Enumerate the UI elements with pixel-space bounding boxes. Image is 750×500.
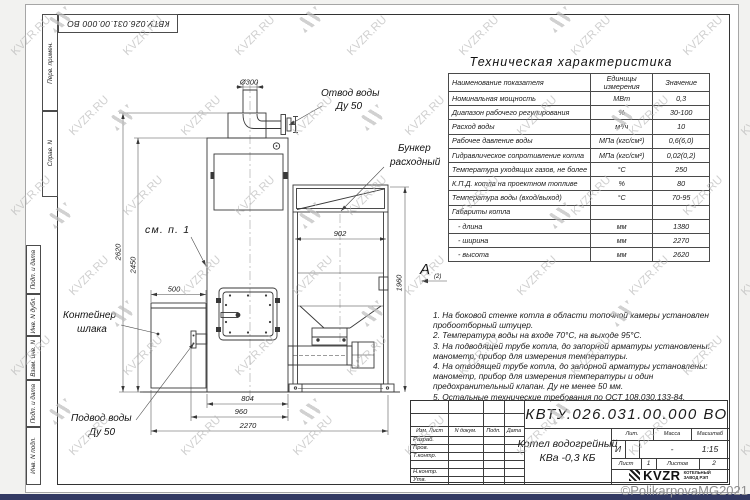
label-slag-2: шлака bbox=[77, 324, 107, 335]
copyright-watermark: ©PolikarpovaMG2021 bbox=[621, 483, 748, 498]
spec-row: Температура воды (вход/выход)°С70-95 bbox=[449, 191, 710, 205]
tb-role-utv: Утв. bbox=[413, 477, 426, 483]
spec-table-title: Техническая характеристика bbox=[448, 55, 694, 69]
label-water-inlet-2: Ду 50 bbox=[88, 427, 115, 438]
spec-row: Рабочее давление водыМПа (кгс/см²)0,6(6,… bbox=[449, 134, 710, 148]
callout-labels: Отвод воды Ду 50 Бункер расходный см. п.… bbox=[63, 88, 441, 438]
tb-sheets-value: 2 bbox=[699, 458, 729, 469]
tb-mass-header: Масса bbox=[653, 428, 691, 440]
centerlines bbox=[250, 84, 340, 398]
spec-col-name: Наименование показателя bbox=[449, 74, 591, 92]
note-3: 3. На подводящей трубе котла, до запорно… bbox=[433, 342, 716, 362]
label-see-note: см. п. 1 bbox=[145, 224, 190, 236]
label-water-inlet-1: Подвод воды bbox=[71, 413, 132, 424]
door-handle bbox=[221, 313, 238, 318]
label-water-outlet-2: Ду 50 bbox=[335, 101, 362, 112]
upper-panel bbox=[214, 154, 283, 210]
spec-row: Гидравлическое сопротивление котлаМПа (к… bbox=[449, 148, 710, 162]
screw-feeder bbox=[288, 328, 374, 368]
note-2: 2. Температура воды на входе 70°С, на вы… bbox=[433, 331, 716, 341]
tb-role-prov: Пров. bbox=[413, 445, 428, 451]
dimension-arrows bbox=[121, 85, 428, 432]
view-marker-letter: А bbox=[419, 261, 430, 278]
kvzr-logo-text: KVZR bbox=[643, 468, 680, 483]
dim-bunker-height: 1960 bbox=[395, 274, 404, 292]
label-bunker-2: расходный bbox=[389, 157, 441, 168]
tb-header-izm-list: Изм. Лист bbox=[411, 426, 448, 436]
tb-designation: КВТУ.026.031.00.000 ВО bbox=[524, 401, 729, 428]
dim-chimney: Ø300 bbox=[239, 78, 259, 87]
tb-lit-header: Лит. bbox=[611, 428, 653, 440]
tb-header-podp: Подп. bbox=[483, 426, 504, 436]
tb-scale-header: Масштаб bbox=[691, 428, 729, 440]
spec-row: Габариты котла bbox=[449, 205, 710, 219]
smoke-box bbox=[228, 113, 266, 138]
boiler-unit bbox=[140, 90, 400, 392]
elbow-inner bbox=[257, 114, 262, 121]
tb-sheet-label: Лист bbox=[611, 458, 641, 469]
note-4: 4. На отводящей трубе котла, до запорной… bbox=[433, 362, 716, 392]
kvzr-logo: KVZR КОТЕЛЬНЫЙ ЗАВОД РЭП bbox=[611, 469, 729, 482]
dim-total-height: 2620 bbox=[114, 243, 123, 262]
dim-body-height: 2450 bbox=[129, 256, 138, 275]
tb-lit-value: И bbox=[611, 440, 625, 458]
dim-base-width: 804 bbox=[241, 394, 254, 403]
title-block: Изм. Лист N докум. Подп. Дата Разраб. Пр… bbox=[410, 400, 728, 483]
spec-row: Номинальная мощностьМВт0,3 bbox=[449, 92, 710, 106]
tb-header-data: Дата bbox=[504, 426, 524, 436]
spec-row: К.П.Д. котла на проектном топливе%80 bbox=[449, 177, 710, 191]
spec-row: Температура уходящих газов, не более°С25… bbox=[449, 162, 710, 176]
tb-mass-value: - bbox=[653, 440, 691, 458]
tb-header-n-dokum: N докум. bbox=[448, 426, 483, 436]
tb-role-nkontr: Н.контр. bbox=[413, 469, 438, 475]
spec-table: Наименование показателя Единицы измерени… bbox=[448, 73, 710, 262]
elbow-outer bbox=[243, 114, 262, 129]
label-bunker-1: Бункер bbox=[398, 143, 431, 154]
dim-total-width: 2270 bbox=[239, 421, 258, 430]
spec-header-row: Наименование показателя Единицы измерени… bbox=[449, 74, 710, 92]
spec-row: Диапазон рабочего регулирования%30-100 bbox=[449, 106, 710, 120]
spec-col-units: Единицы измерения bbox=[591, 74, 653, 92]
kvzr-logo-icon bbox=[629, 470, 640, 481]
dim-slag-width: 500 bbox=[168, 285, 181, 294]
drawing-sheet: { "frame": { "designation_top": "КВТУ.02… bbox=[0, 0, 750, 500]
dimension-lines bbox=[119, 82, 409, 435]
tb-role-razrab: Разраб. bbox=[413, 437, 434, 443]
label-water-outlet-1: Отвод воды bbox=[321, 88, 380, 99]
label-slag-1: Контейнер bbox=[63, 310, 116, 321]
slag-container bbox=[151, 303, 206, 388]
note-1: 1. На боковой стенке котла в области топ… bbox=[433, 311, 716, 331]
kvzr-logo-subtitle: КОТЕЛЬНЫЙ ЗАВОД РЭП bbox=[684, 471, 711, 481]
tb-role-tkontr: Т.контр. bbox=[413, 453, 436, 459]
tb-product-name-1: Котел водогрейный bbox=[524, 437, 611, 451]
spec-col-value: Значение bbox=[653, 74, 710, 92]
dim-mid-width: 960 bbox=[235, 407, 248, 416]
tb-scale-value: 1:15 bbox=[691, 440, 729, 458]
spec-row: - ширинамм2270 bbox=[449, 233, 710, 247]
dimension-labels: Ø300 2620 2450 500 804 960 2270 902 1960 bbox=[114, 78, 404, 431]
spec-row: - длинамм1380 bbox=[449, 219, 710, 233]
dim-bunker-width: 902 bbox=[334, 229, 347, 238]
water-inlet-stub bbox=[191, 331, 207, 348]
technical-notes: 1. На боковой стенке котла в области топ… bbox=[433, 311, 716, 403]
bunker-feet bbox=[289, 384, 394, 392]
spec-row: Расход водым³/ч10 bbox=[449, 120, 710, 134]
spec-row: - высотамм2620 bbox=[449, 248, 710, 262]
boiler-body bbox=[207, 138, 288, 392]
tb-product-name-2: КВа -0,3 КБ bbox=[524, 451, 611, 465]
outlet-flange bbox=[281, 115, 286, 135]
door-bolts bbox=[216, 294, 280, 333]
view-marker-index: (2) bbox=[434, 274, 441, 280]
